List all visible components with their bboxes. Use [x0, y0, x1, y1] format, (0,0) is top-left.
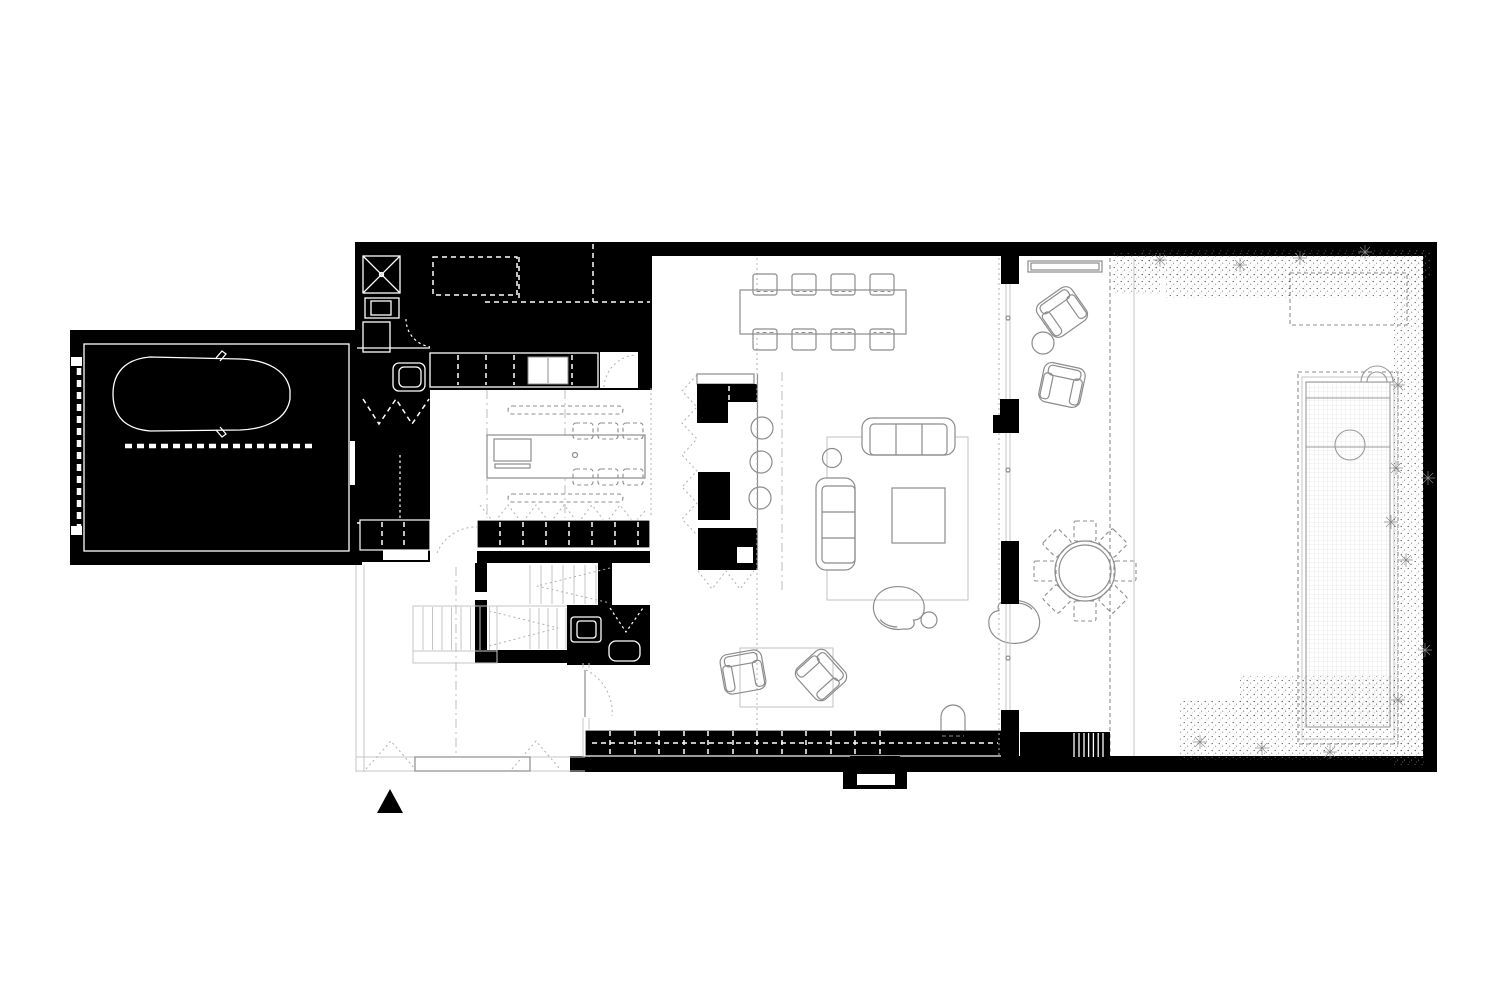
- dining-table: [740, 290, 906, 334]
- wood-stove: [941, 705, 965, 731]
- reading-armchair: [792, 646, 850, 704]
- dining-chair: [831, 329, 855, 350]
- wall-under-cabinets: [477, 551, 650, 563]
- utility-laundry: [355, 242, 432, 562]
- glazing-joint: [1006, 656, 1010, 660]
- window-wall: [993, 256, 1019, 762]
- counter-stool: [751, 417, 773, 439]
- porch-lounge-chair: [1037, 361, 1086, 409]
- kitchen-wall-counter: [430, 353, 598, 387]
- covered-porch: [1020, 258, 1136, 758]
- mullion-pier: [1001, 541, 1019, 604]
- stove-niche: [737, 547, 753, 563]
- dining-chair: [792, 329, 816, 350]
- sofa-top: [862, 418, 955, 455]
- porch-steps: [1020, 732, 1110, 758]
- counter-top: [697, 374, 754, 384]
- wall-joint-notch: [71, 526, 82, 535]
- reading-armchair: [719, 649, 767, 696]
- pool-steps-bump: [1361, 366, 1393, 382]
- glazing-joint: [1006, 316, 1010, 320]
- dining-chair: [870, 274, 894, 295]
- dining-chair: [831, 274, 855, 295]
- mullion-pier: [1000, 399, 1019, 433]
- counter-stool: [750, 451, 772, 473]
- floor-plan-page: [0, 0, 1500, 1000]
- hall-door-swing: [437, 527, 477, 553]
- door-opening: [582, 668, 590, 718]
- living-area: [585, 418, 1041, 789]
- glazing-joint: [1006, 468, 1010, 472]
- chimney-bay: [843, 756, 907, 789]
- kitchen-island: [487, 435, 645, 478]
- side-table: [921, 612, 937, 628]
- bar-counter-unit: [682, 374, 773, 589]
- floor-plan-canvas: [0, 0, 1500, 1000]
- stair-treads-lower: [530, 608, 566, 649]
- wc: [567, 605, 650, 665]
- wall-right: [1423, 242, 1437, 772]
- bottom-cabinet-row: [585, 730, 1003, 756]
- coffee-table: [892, 488, 945, 543]
- mullion-pier: [1001, 256, 1019, 284]
- mullion-pier: [993, 415, 1001, 433]
- porch-bench: [1028, 261, 1102, 272]
- entry-step: [415, 757, 530, 771]
- garage: [70, 330, 392, 565]
- sofa-left: [816, 478, 855, 570]
- porch-side-table: [1032, 332, 1054, 354]
- kitchen-door-opening: [600, 352, 638, 388]
- north-arrow-icon: [377, 789, 403, 813]
- side-table: [823, 449, 842, 468]
- counter-stool: [749, 487, 771, 509]
- swivel-armchair: [987, 598, 1041, 645]
- swivel-armchair: [871, 583, 927, 633]
- wall-joint-notch: [71, 357, 82, 366]
- terrace-garden: [1112, 245, 1435, 765]
- dining-chair: [792, 274, 816, 295]
- mudroom-door-opening: [383, 549, 428, 560]
- outdoor-round-table-set: [1034, 521, 1136, 621]
- stair-treads-upper: [530, 565, 596, 604]
- dining-chair: [870, 329, 894, 350]
- entry-door-swing: [366, 741, 415, 769]
- zigzag-detail: [698, 571, 754, 589]
- mullion-pier: [1001, 710, 1019, 762]
- pool-basin: [1306, 382, 1390, 727]
- wardrobe-pantry: [430, 242, 652, 390]
- folding-partition-zigzag: [682, 375, 697, 535]
